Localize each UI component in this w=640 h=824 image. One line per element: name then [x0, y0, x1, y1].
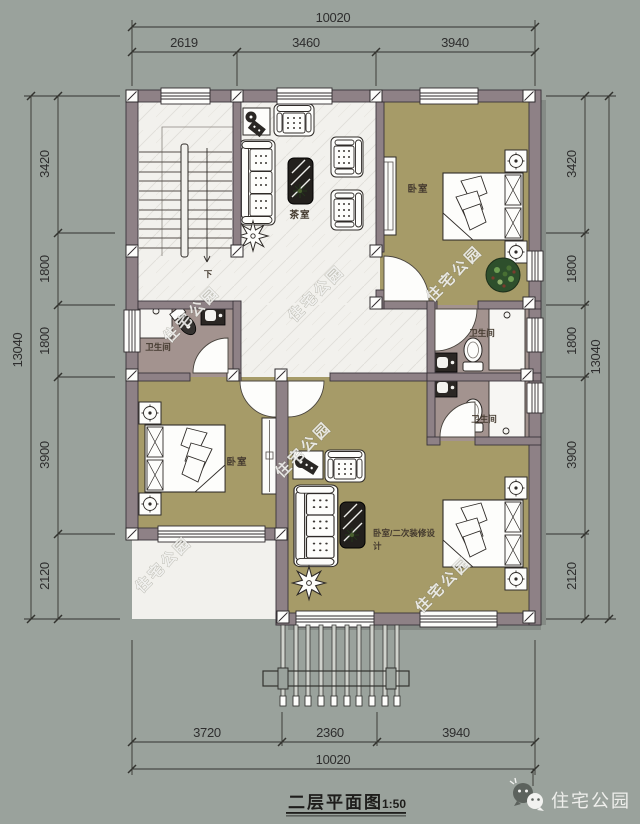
wechat-icon [510, 778, 544, 811]
shower [489, 377, 525, 437]
bed [443, 500, 523, 567]
potted-plant [486, 258, 520, 292]
nightstand [505, 477, 527, 499]
shower [489, 308, 525, 370]
sink-vanity [433, 353, 457, 372]
stair-down-label: 下 [204, 269, 213, 279]
dim-left-seg-3: 3900 [37, 441, 52, 469]
dim-bottom-seg-2: 3940 [442, 725, 470, 740]
nightstand [139, 402, 161, 424]
page-title: 二层平面图 [288, 793, 383, 812]
terrace-pergola [263, 625, 409, 706]
drawing-scale: 1:50 [382, 797, 406, 811]
dim-left-seg-4: 2120 [37, 562, 52, 590]
armchair [274, 104, 314, 136]
dim-top-seg-1: 3460 [292, 35, 320, 50]
brand-name: 住宅公园 [551, 791, 631, 811]
dim-left-seg-1: 1800 [37, 255, 52, 283]
window [527, 318, 543, 352]
brand-logo: 住宅公园 [510, 778, 631, 811]
floor-plan-drawing: 下 [0, 0, 640, 824]
nightstand [505, 150, 527, 172]
dim-right-seg-1: 1800 [564, 255, 579, 283]
room-label-bathroom-lower: 卫生间 [471, 414, 497, 424]
window [158, 526, 265, 542]
corner-cabinet [243, 108, 270, 137]
window [277, 88, 332, 104]
bed [145, 425, 225, 492]
room-label-bedroom-bottomleft: 卧室 [226, 456, 247, 468]
dimension-right [546, 92, 616, 623]
floor-tile-hall-lower [241, 305, 427, 373]
plant-stand [293, 567, 326, 600]
dim-bottom-seg-1: 2360 [316, 725, 344, 740]
sofa [240, 140, 275, 225]
armchair [331, 190, 363, 230]
armchair [331, 137, 363, 177]
toilet [463, 338, 483, 371]
bed [443, 173, 523, 240]
window [124, 310, 140, 352]
caption-group: 二层平面图 1:50 [286, 793, 406, 816]
tea-table [340, 502, 365, 548]
dimension-top [128, 20, 539, 86]
stair-railing [181, 144, 188, 257]
dim-left-total: 13040 [10, 333, 25, 368]
dim-left-seg-0: 3420 [37, 150, 52, 178]
shadow-right [541, 100, 546, 625]
window [161, 88, 210, 104]
wardrobe [262, 418, 277, 494]
room-label-bedroom-secondary-2: 计 [373, 541, 382, 551]
room-label-tea: 茶室 [288, 209, 310, 221]
dim-top-seg-2: 3940 [441, 35, 469, 50]
sofa [294, 485, 338, 567]
nightstand [139, 493, 161, 515]
dim-right-seg-4: 2120 [564, 562, 579, 590]
caption-underline-thin [286, 816, 406, 817]
room-label-bathroom-left: 卫生间 [145, 342, 171, 352]
nightstand [505, 568, 527, 590]
dim-right-seg-3: 3900 [564, 441, 579, 469]
room-label-bedroom-topright: 卧室 [407, 183, 428, 195]
window [527, 383, 543, 413]
dim-left-seg-2: 1800 [37, 327, 52, 355]
dim-top-total: 10020 [316, 10, 351, 25]
dim-right-seg-2: 1800 [564, 327, 579, 355]
room-label-bathroom-upper: 卫生间 [469, 328, 495, 338]
caption-underline-thick [286, 812, 406, 814]
dim-bottom-seg-0: 3720 [193, 725, 221, 740]
window [527, 251, 543, 281]
tea-table [288, 158, 313, 204]
dim-bottom-total: 10020 [316, 752, 351, 767]
window [420, 88, 478, 104]
room-label-bedroom-secondary-1: 卧室/二次装修设 [373, 528, 435, 538]
dim-right-seg-0: 3420 [564, 150, 579, 178]
floor-plan-page: 下 [0, 0, 640, 824]
dim-right-total: 13040 [588, 340, 603, 375]
armchair [325, 450, 365, 482]
dim-top-seg-0: 2619 [170, 35, 198, 50]
window [420, 611, 497, 627]
window [296, 611, 374, 627]
